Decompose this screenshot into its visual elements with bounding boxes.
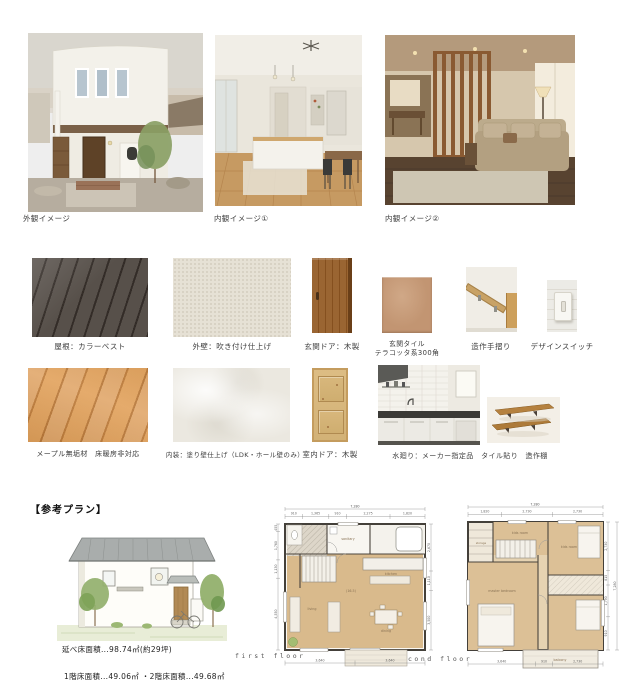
room-master-bedroom: master bedroom	[488, 589, 515, 593]
kitchen-photo	[378, 365, 480, 445]
room-ldk-size: (16.5)	[346, 589, 356, 593]
first-floor-plan: 7,280 910 1,365 910 2,275 1,820	[250, 502, 435, 674]
svg-text:3,640: 3,640	[497, 660, 506, 664]
interior-photo-2-art	[385, 35, 575, 205]
room-dining: dining	[381, 629, 391, 633]
dim-right-total-2f: 7,280	[613, 581, 617, 590]
presentation-page: 外観イメージ 内観イメージ① 内観イメージ② 屋根：カラーベスト 外壁：吹き付け…	[0, 0, 622, 700]
svg-text:910: 910	[541, 660, 547, 664]
outer-wall-sample	[173, 258, 291, 337]
plaster-wall-sample	[173, 368, 290, 442]
svg-text:1,130: 1,130	[274, 564, 278, 573]
house-illustration	[55, 521, 230, 646]
dim-top-total-2f: 7,280	[530, 503, 539, 507]
handrail-label: 造作手摺り	[451, 341, 531, 352]
room-kitchen: kitchen	[385, 572, 397, 576]
exterior-photo-art	[28, 33, 203, 212]
interior-photo-1-label: 内観イメージ①	[214, 213, 268, 224]
svg-text:1,820: 1,820	[403, 512, 412, 516]
room-storage: storage	[476, 541, 487, 545]
maple-floor-label: メープル無垢材 床暖房非対応	[28, 449, 148, 459]
floor-area-text: 1階床面積...49.06㎡ ・2階床面積...49.68㎡	[64, 671, 225, 682]
roof-sample	[32, 258, 148, 337]
entrance-door-sample	[312, 258, 352, 333]
interior-door-sample	[312, 368, 348, 442]
first-floor-label: first floor	[235, 652, 306, 660]
svg-text:3,640: 3,640	[385, 659, 394, 663]
svg-text:910: 910	[334, 512, 340, 516]
svg-text:1,110: 1,110	[427, 576, 431, 585]
interior-door-label: 室内ドア：木製	[290, 449, 370, 460]
interior-photo-1	[215, 35, 362, 206]
room-living: living	[308, 607, 317, 611]
second-floor-label: cond floor	[408, 655, 472, 663]
room-balcony: balcony	[554, 658, 567, 662]
svg-text:1,820: 1,820	[480, 510, 489, 514]
room-kids-1: kids room	[512, 531, 528, 535]
outer-wall-label: 外壁：吹き付け仕上げ	[163, 341, 301, 352]
svg-text:3,640: 3,640	[315, 659, 324, 663]
room-sanitary: sanitary	[341, 537, 354, 541]
svg-text:455: 455	[274, 525, 278, 531]
entrance-tile-label-2: テラコッタ系300角	[357, 347, 457, 357]
svg-text:2,730: 2,730	[573, 660, 582, 664]
interior-photo-1-art	[215, 35, 362, 206]
shelf-photo	[487, 397, 560, 443]
svg-text:1,365: 1,365	[311, 512, 320, 516]
shelf-photo-art	[487, 397, 560, 443]
exterior-photo	[28, 33, 203, 212]
maple-floor-sample	[28, 368, 148, 442]
dim-top-total: 7,280	[350, 505, 359, 509]
reference-plan-heading: 【参考プラン】	[30, 501, 107, 516]
svg-text:2,730: 2,730	[522, 510, 531, 514]
svg-text:2,730: 2,730	[604, 542, 608, 551]
entrance-tile-sample	[382, 277, 432, 333]
svg-text:815: 815	[604, 575, 608, 581]
roof-label: 屋根：カラーベスト	[32, 341, 148, 352]
svg-text:910: 910	[291, 512, 297, 516]
second-floor-plan: 7,280 1,820 2,730 2,730	[438, 500, 622, 680]
design-switch-photo	[547, 280, 577, 332]
svg-text:1,790: 1,790	[604, 596, 608, 605]
svg-text:2,670: 2,670	[427, 543, 431, 552]
water-area-label: 水廻り：メーカー指定品 タイル貼り 造作棚	[370, 451, 570, 461]
svg-text:2,730: 2,730	[573, 510, 582, 514]
interior-photo-2-label: 内観イメージ②	[385, 213, 439, 224]
svg-text:2,275: 2,275	[364, 512, 373, 516]
room-kids-2: kids room	[561, 545, 577, 549]
exterior-photo-label: 外観イメージ	[23, 213, 70, 224]
handrail-photo	[466, 267, 517, 332]
kitchen-photo-art	[378, 365, 480, 445]
svg-text:910: 910	[604, 630, 608, 636]
svg-text:3,500: 3,500	[427, 616, 431, 625]
svg-text:4,550: 4,550	[274, 609, 278, 618]
design-switch-label: デザインスイッチ	[522, 341, 602, 352]
total-area-text: 延べ床面積...98.74㎡(約29坪)	[62, 644, 172, 655]
interior-photo-2	[385, 35, 575, 205]
svg-text:1,760: 1,760	[274, 541, 278, 550]
